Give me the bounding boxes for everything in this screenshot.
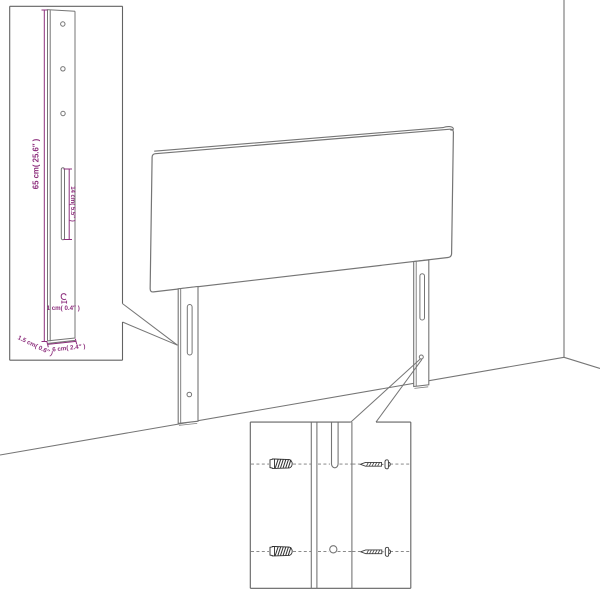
svg-text:1 cm( 0.4″ ): 1 cm( 0.4″ ) [47,305,80,312]
svg-text:65 cm( 25.6″ ): 65 cm( 25.6″ ) [32,138,41,189]
svg-text:14 cm( 5.5″ ): 14 cm( 5.5″ ) [69,186,75,222]
